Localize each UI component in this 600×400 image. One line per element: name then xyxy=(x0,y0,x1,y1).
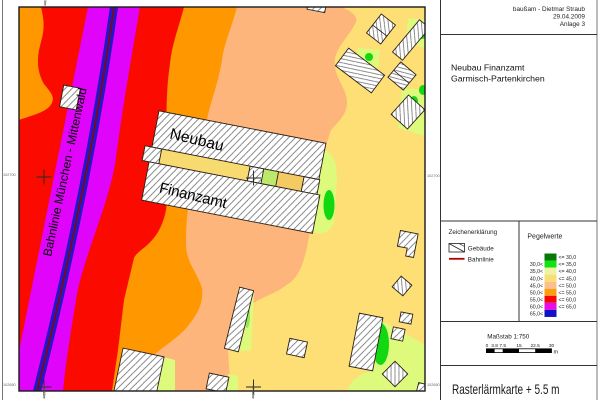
svg-text:4428450: 4428450 xyxy=(44,0,48,5)
svg-text:65,0<: 65,0< xyxy=(530,312,543,318)
svg-text:35,0<: 35,0< xyxy=(530,269,543,275)
svg-text:30,0<: 30,0< xyxy=(530,262,543,268)
svg-text:Zeichenerklärung: Zeichenerklärung xyxy=(449,229,498,236)
svg-text:3.8: 3.8 xyxy=(491,343,498,349)
svg-text:29.04.2009: 29.04.2009 xyxy=(553,14,585,21)
svg-text:Rasterlärmkarte + 5.5 m: Rasterlärmkarte + 5.5 m xyxy=(452,381,560,397)
svg-text:4428500: 4428500 xyxy=(252,385,256,399)
svg-text:40,0<: 40,0< xyxy=(530,276,543,282)
svg-text:45,0<: 45,0< xyxy=(530,283,543,289)
svg-text:102650: 102650 xyxy=(427,383,440,387)
svg-text:0: 0 xyxy=(486,343,489,349)
svg-text:<= 55,0: <= 55,0 xyxy=(559,290,577,296)
svg-text:55,0<: 55,0< xyxy=(530,297,543,303)
svg-text:30: 30 xyxy=(549,343,555,349)
svg-text:m: m xyxy=(554,349,559,355)
svg-text:Anlage 3: Anlage 3 xyxy=(560,21,586,28)
svg-text:<= 60,0: <= 60,0 xyxy=(559,297,577,303)
svg-text:15: 15 xyxy=(516,343,522,349)
svg-text:baußam - Dietmar Straub: baußam - Dietmar Straub xyxy=(513,6,586,13)
svg-text:<= 65,0: <= 65,0 xyxy=(559,305,577,311)
svg-text:Bahnlinie: Bahnlinie xyxy=(468,256,494,263)
svg-text:4428450: 4428450 xyxy=(43,385,47,399)
svg-text:<= 35,0: <= 35,0 xyxy=(559,262,577,268)
svg-text:Neubau Finanzamt: Neubau Finanzamt xyxy=(451,63,525,73)
svg-text:102700: 102700 xyxy=(427,174,440,178)
svg-text:Maßstab 1:750: Maßstab 1:750 xyxy=(487,334,530,341)
svg-text:Pegelwerte: Pegelwerte xyxy=(527,234,562,241)
svg-text:102700: 102700 xyxy=(3,173,16,177)
svg-text:<= 30,0: <= 30,0 xyxy=(559,255,577,261)
svg-text:102650: 102650 xyxy=(3,383,16,387)
svg-text:<= 40,0: <= 40,0 xyxy=(559,269,577,275)
svg-text:50,0<: 50,0< xyxy=(530,290,543,296)
svg-text:<= 45,0: <= 45,0 xyxy=(559,276,577,282)
svg-text:7.5: 7.5 xyxy=(499,343,506,349)
svg-text:<= 50,0: <= 50,0 xyxy=(559,283,577,289)
svg-text:Garmisch-Partenkirchen: Garmisch-Partenkirchen xyxy=(451,74,545,84)
svg-text:22.5: 22.5 xyxy=(531,343,541,349)
svg-text:60,0<: 60,0< xyxy=(530,305,543,311)
svg-text:Gebäude: Gebäude xyxy=(468,245,494,252)
